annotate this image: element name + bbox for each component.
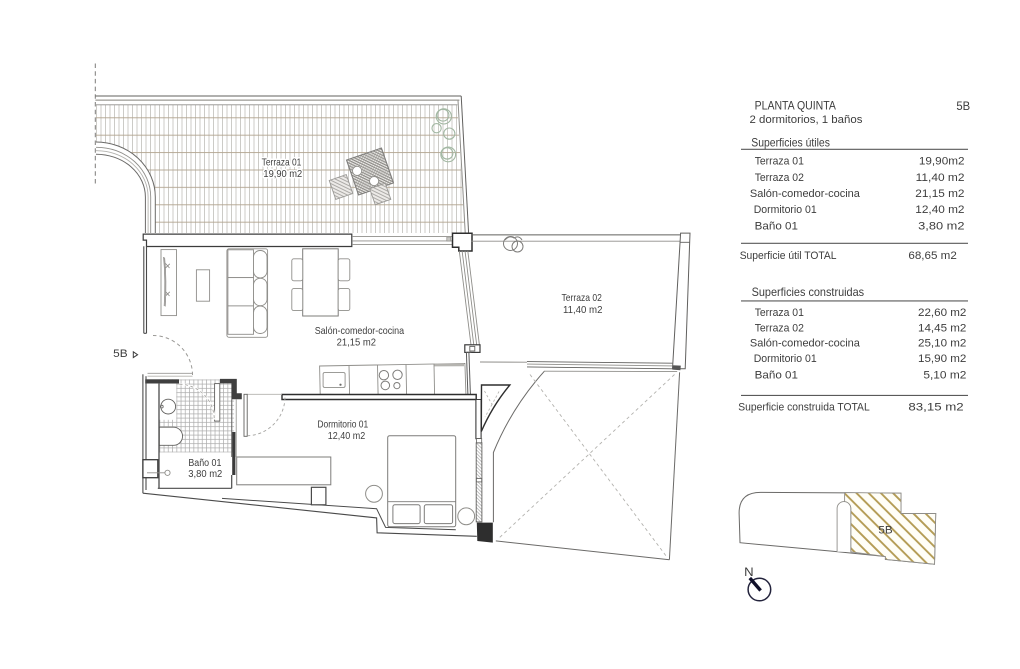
svg-text:11,40 m2: 11,40 m2 xyxy=(563,305,603,316)
svg-text:Superficie construida TOTAL: Superficie construida TOTAL xyxy=(738,402,869,414)
svg-text:5B: 5B xyxy=(878,525,892,537)
svg-text:Salón-comedor-cocina: Salón-comedor-cocina xyxy=(315,326,405,337)
svg-text:14,45 m2: 14,45 m2 xyxy=(918,323,966,335)
svg-text:Superficies útiles: Superficies útiles xyxy=(751,136,830,149)
svg-text:22,60 m2: 22,60 m2 xyxy=(918,307,966,319)
svg-text:Baño 01: Baño 01 xyxy=(755,220,798,232)
svg-text:3,80 m2: 3,80 m2 xyxy=(188,469,222,480)
svg-text:2 dormitorios, 1 baños: 2 dormitorios, 1 baños xyxy=(750,114,863,126)
svg-text:PLANTA QUINTA: PLANTA QUINTA xyxy=(755,99,837,113)
svg-text:Baño 01: Baño 01 xyxy=(755,370,798,382)
svg-text:5,10 m2: 5,10 m2 xyxy=(923,370,966,382)
svg-text:21,15 m2: 21,15 m2 xyxy=(337,337,376,348)
svg-text:Terraza 01: Terraza 01 xyxy=(755,307,804,319)
svg-text:25,10 m2: 25,10 m2 xyxy=(918,338,966,350)
svg-text:Dormitorio 01: Dormitorio 01 xyxy=(317,419,368,430)
svg-text:5B: 5B xyxy=(956,99,970,113)
svg-text:11,40 m2: 11,40 m2 xyxy=(916,172,965,184)
svg-text:Dormitorio 01: Dormitorio 01 xyxy=(754,353,817,365)
svg-text:21,15 m2: 21,15 m2 xyxy=(915,188,964,200)
svg-text:68,65 m2: 68,65 m2 xyxy=(908,250,956,262)
svg-text:12,40 m2: 12,40 m2 xyxy=(915,204,964,216)
svg-text:19,90m2: 19,90m2 xyxy=(919,156,965,168)
svg-text:12,40 m2: 12,40 m2 xyxy=(328,431,366,442)
svg-text:83,15 m2: 83,15 m2 xyxy=(908,402,963,414)
svg-text:Baño 01: Baño 01 xyxy=(188,458,221,469)
svg-text:Terraza 02: Terraza 02 xyxy=(755,172,804,184)
svg-text:N: N xyxy=(744,566,754,579)
svg-text:Terraza 01: Terraza 01 xyxy=(262,157,302,168)
svg-text:Superficie útil TOTAL: Superficie útil TOTAL xyxy=(740,250,837,262)
svg-text:Salón-comedor-cocina: Salón-comedor-cocina xyxy=(750,338,861,350)
svg-text:15,90 m2: 15,90 m2 xyxy=(918,353,966,365)
svg-text:Superficies construidas: Superficies construidas xyxy=(752,286,865,299)
svg-text:5B: 5B xyxy=(113,348,128,360)
svg-text:19,90 m2: 19,90 m2 xyxy=(263,169,302,180)
svg-text:Dormitorio 01: Dormitorio 01 xyxy=(754,204,817,216)
svg-text:Terraza 01: Terraza 01 xyxy=(755,156,804,168)
svg-text:Salón-comedor-cocina: Salón-comedor-cocina xyxy=(750,188,861,200)
svg-text:3,80 m2: 3,80 m2 xyxy=(918,220,964,232)
svg-text:Terraza 02: Terraza 02 xyxy=(755,323,804,335)
svg-text:Terraza 02: Terraza 02 xyxy=(562,293,602,304)
